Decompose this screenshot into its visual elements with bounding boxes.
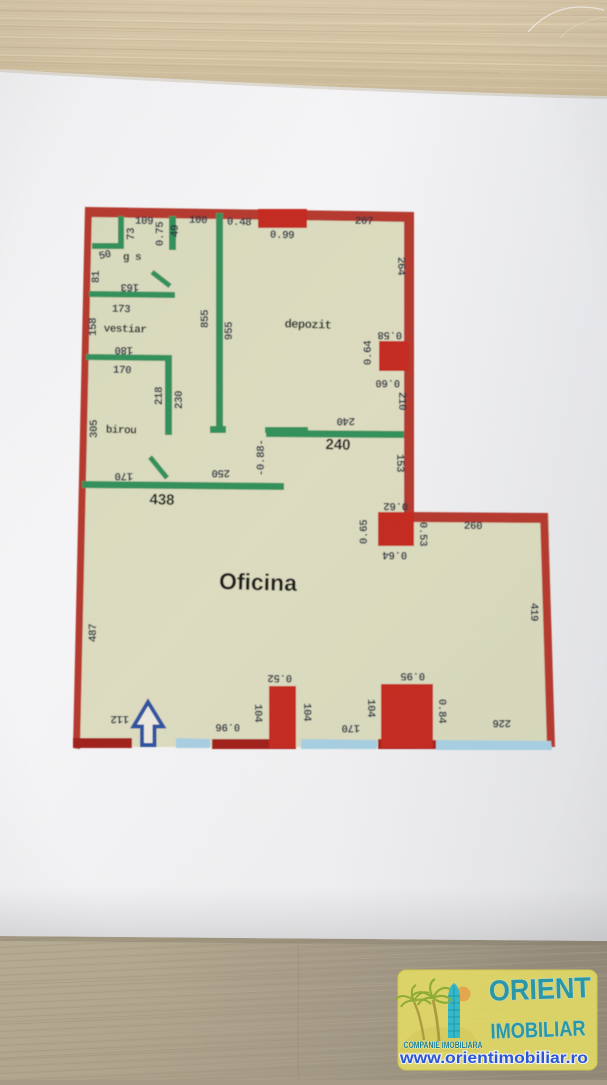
svg-text:www.orientimobiliar.ro: www.orientimobiliar.ro [399, 1050, 588, 1067]
svg-text:ORIENT: ORIENT [488, 972, 591, 1008]
svg-text:IMOBILIAR: IMOBILIAR [490, 1016, 586, 1043]
